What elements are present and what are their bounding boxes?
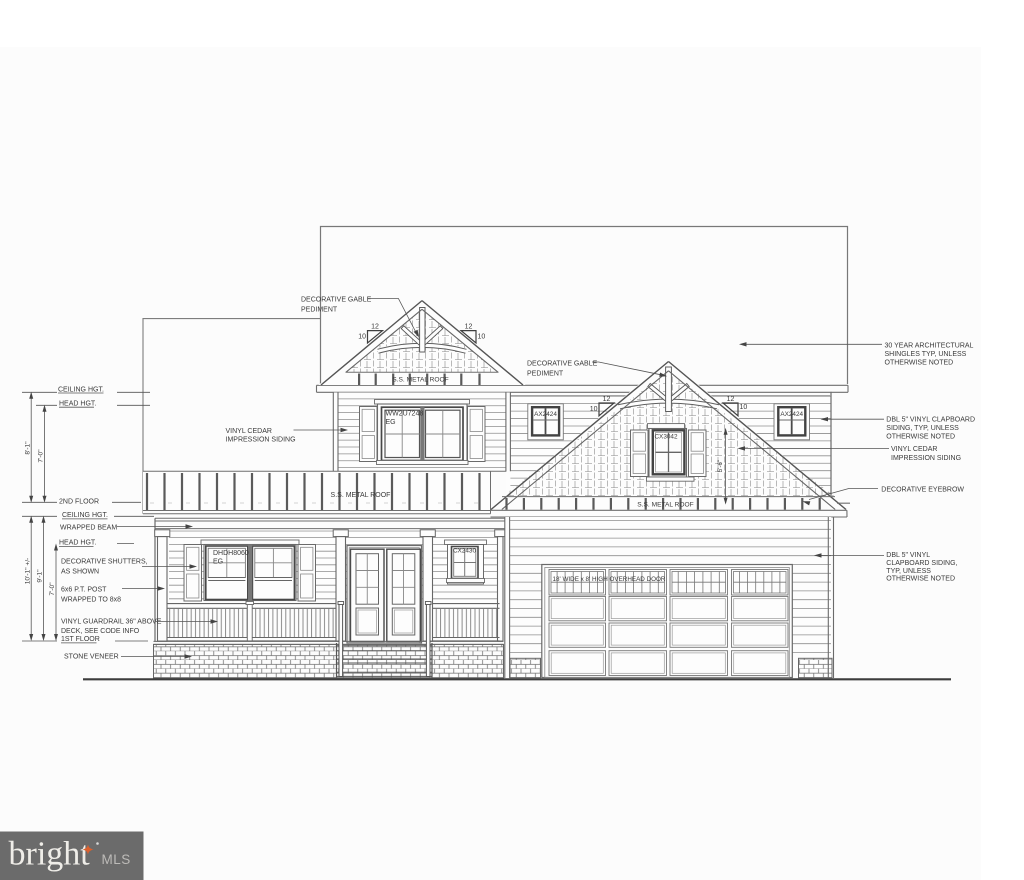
svg-text:AS SHOWN: AS SHOWN bbox=[61, 569, 99, 576]
svg-text:10'-1" +/-: 10'-1" +/- bbox=[25, 558, 32, 585]
svg-text:12: 12 bbox=[371, 324, 379, 331]
svg-text:SIDING, TYP, UNLESS: SIDING, TYP, UNLESS bbox=[886, 425, 959, 432]
svg-text:SHINGLES TYP, UNLESS: SHINGLES TYP, UNLESS bbox=[885, 351, 967, 358]
svg-text:PEDIMENT: PEDIMENT bbox=[301, 307, 338, 314]
svg-text:VINYL CEDAR: VINYL CEDAR bbox=[891, 446, 937, 453]
svg-text:10: 10 bbox=[590, 406, 598, 413]
svg-text:STONE VENEER: STONE VENEER bbox=[64, 654, 119, 661]
svg-text:DECORATIVE EYEBROW: DECORATIVE EYEBROW bbox=[881, 486, 964, 493]
svg-text:DBL 5" VINYL: DBL 5" VINYL bbox=[886, 552, 930, 559]
svg-text:AX2424: AX2424 bbox=[534, 411, 557, 418]
svg-text:10: 10 bbox=[740, 404, 748, 411]
svg-text:2ND FLOOR: 2ND FLOOR bbox=[59, 499, 99, 506]
svg-text:7'-0": 7'-0" bbox=[38, 449, 45, 463]
svg-text:CEILING HGT.: CEILING HGT. bbox=[62, 512, 108, 519]
svg-text:HEAD HGT.: HEAD HGT. bbox=[59, 401, 96, 408]
svg-text:30 YEAR ARCHITECTURAL: 30 YEAR ARCHITECTURAL bbox=[885, 342, 974, 349]
svg-text:10: 10 bbox=[478, 334, 486, 341]
svg-text:12: 12 bbox=[727, 396, 735, 403]
svg-text:6x6 P.T. POST: 6x6 P.T. POST bbox=[61, 587, 107, 594]
svg-text:DECORATIVE GABLE: DECORATIVE GABLE bbox=[301, 297, 372, 304]
svg-text:CX3042: CX3042 bbox=[654, 434, 678, 441]
svg-text:DECORATIVE GABLE: DECORATIVE GABLE bbox=[527, 361, 598, 368]
svg-text:VINYL CEDAR: VINYL CEDAR bbox=[226, 428, 272, 435]
svg-text:8'-1": 8'-1" bbox=[25, 441, 32, 455]
svg-text:CEILING HGT.: CEILING HGT. bbox=[58, 386, 104, 393]
svg-text:OTHERWISE NOTED: OTHERWISE NOTED bbox=[885, 360, 954, 367]
svg-text:bright: bright bbox=[9, 836, 91, 873]
svg-text:WRAPPED BEAM: WRAPPED BEAM bbox=[60, 525, 117, 532]
svg-text:OTHERWISE NOTED: OTHERWISE NOTED bbox=[886, 576, 955, 583]
svg-text:7'-0": 7'-0" bbox=[49, 582, 56, 596]
svg-text:WRAPPED TO 8x8: WRAPPED TO 8x8 bbox=[61, 597, 121, 604]
svg-text:PEDIMENT: PEDIMENT bbox=[527, 370, 564, 377]
svg-text:CLAPBOARD SIDING,: CLAPBOARD SIDING, bbox=[886, 560, 957, 567]
svg-text:WW2U7248: WW2U7248 bbox=[386, 411, 424, 418]
svg-text:DECORATIVE SHUTTERS,: DECORATIVE SHUTTERS, bbox=[61, 559, 148, 566]
svg-text:1ST FLOOR: 1ST FLOOR bbox=[61, 636, 100, 643]
svg-text:12: 12 bbox=[465, 324, 473, 331]
svg-text:S.S. METAL ROOF: S.S. METAL ROOF bbox=[637, 501, 693, 508]
svg-text:AX2424: AX2424 bbox=[780, 411, 803, 418]
svg-text:EG: EG bbox=[386, 419, 396, 426]
svg-text:OTHERWISE NOTED: OTHERWISE NOTED bbox=[886, 434, 955, 441]
svg-text:IMPRESSION SIDING: IMPRESSION SIDING bbox=[891, 455, 961, 462]
svg-text:9'-1": 9'-1" bbox=[37, 569, 44, 583]
svg-text:EG: EG bbox=[213, 559, 223, 566]
svg-text:5'-6": 5'-6" bbox=[717, 460, 724, 472]
svg-text:DHDH8060: DHDH8060 bbox=[213, 550, 249, 557]
svg-text:18' WIDE x 8' HIGH OVERHEAD DO: 18' WIDE x 8' HIGH OVERHEAD DOOR bbox=[553, 576, 666, 583]
svg-text:IMPRESSION SIDING: IMPRESSION SIDING bbox=[226, 437, 296, 444]
svg-text:TYP, UNLESS: TYP, UNLESS bbox=[886, 568, 931, 575]
svg-text:DBL 5" VINYL CLAPBOARD: DBL 5" VINYL CLAPBOARD bbox=[886, 416, 975, 423]
svg-text:DECK, SEE CODE INFO: DECK, SEE CODE INFO bbox=[61, 628, 140, 635]
svg-text:12: 12 bbox=[603, 396, 611, 403]
svg-text:S.S. METAL ROOF: S.S. METAL ROOF bbox=[331, 492, 391, 499]
svg-text:VINYL GUARDRAIL 36" ABOVE: VINYL GUARDRAIL 36" ABOVE bbox=[61, 619, 162, 626]
svg-text:10: 10 bbox=[358, 334, 366, 341]
svg-text:S.S. METAL ROOF: S.S. METAL ROOF bbox=[392, 377, 448, 384]
svg-text:HEAD HGT.: HEAD HGT. bbox=[59, 540, 96, 547]
svg-text:CX2430: CX2430 bbox=[453, 548, 477, 555]
svg-text:MLS: MLS bbox=[102, 852, 131, 867]
